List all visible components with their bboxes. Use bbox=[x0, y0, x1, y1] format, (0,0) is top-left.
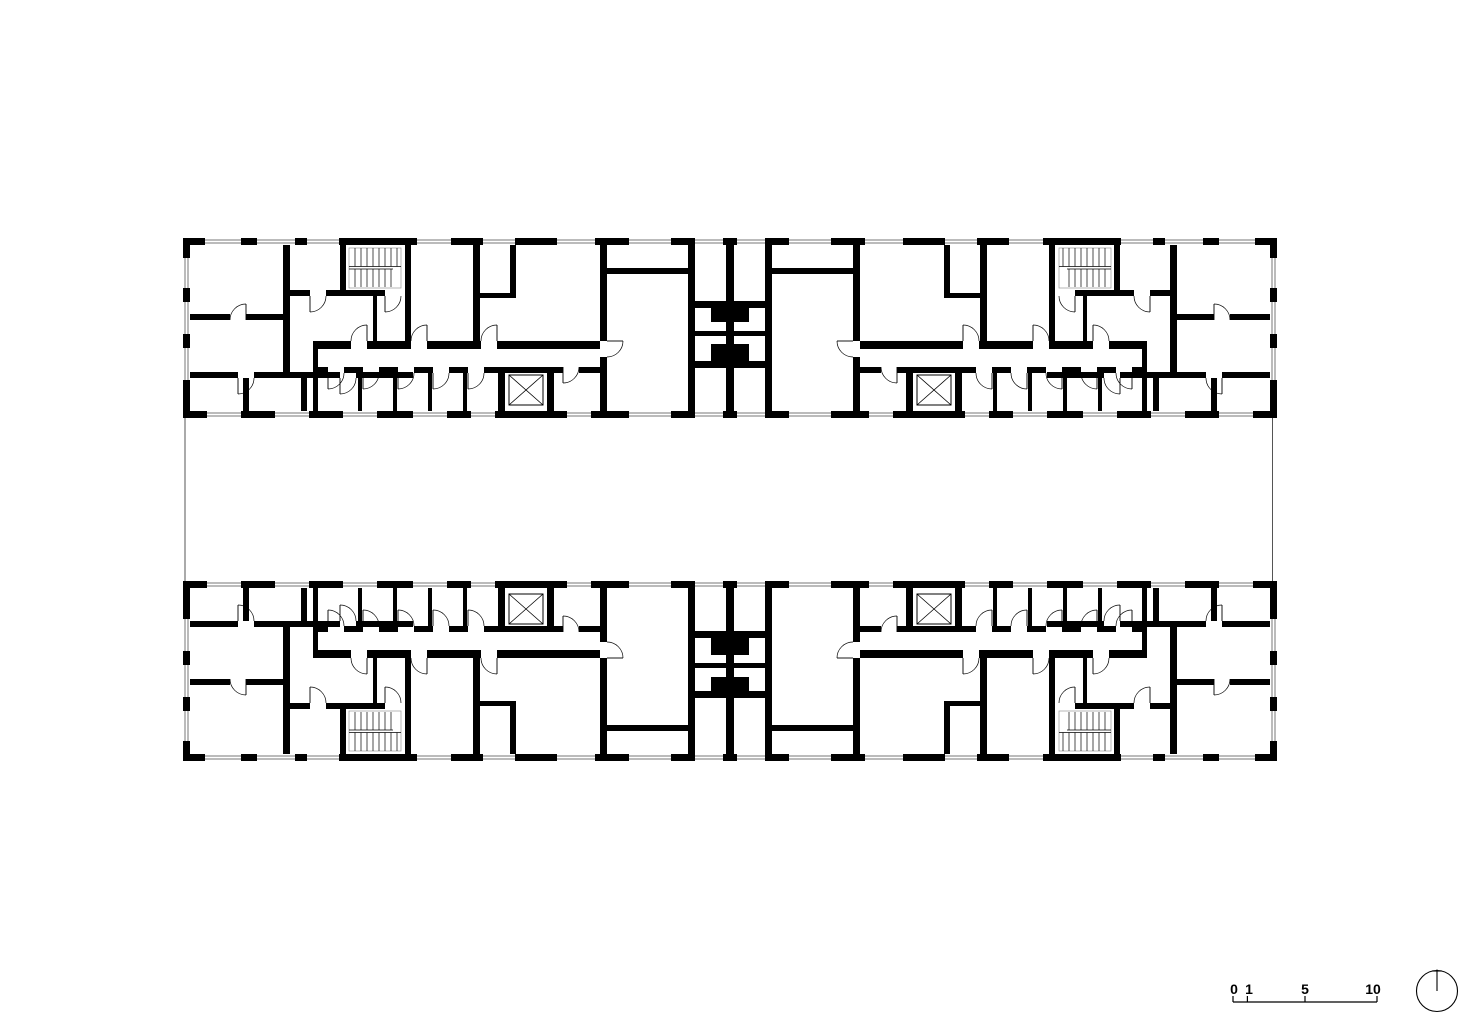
scale-bar: 0 1 5 10 bbox=[1230, 981, 1381, 1002]
scale-label-0: 0 bbox=[1230, 981, 1238, 997]
bottom-wing-plan bbox=[183, 581, 1277, 761]
scale-label-1: 1 bbox=[1245, 981, 1253, 997]
top-wing-plan bbox=[183, 238, 1277, 418]
scale-label-5: 5 bbox=[1301, 981, 1309, 997]
drawing-sheet: 0 1 5 10 bbox=[0, 0, 1469, 1030]
scale-label-10: 10 bbox=[1365, 981, 1381, 997]
floor-plan-canvas: 0 1 5 10 bbox=[0, 0, 1469, 1030]
building-plan bbox=[183, 238, 1277, 761]
north-arrow-icon bbox=[1417, 970, 1458, 1012]
